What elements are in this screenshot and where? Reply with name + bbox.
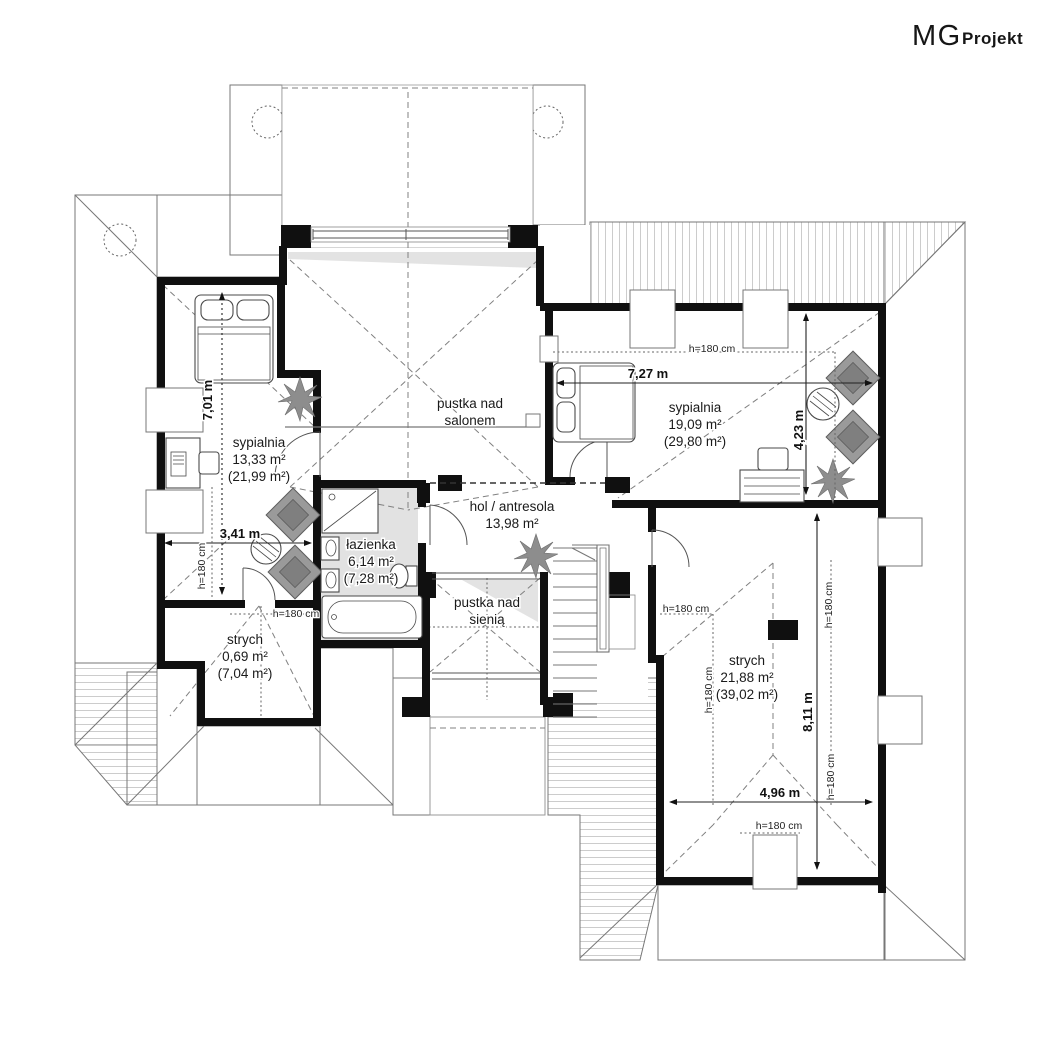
- svg-text:(21,99 m²): (21,99 m²): [228, 469, 290, 484]
- dimension-label: 7,27 m: [628, 366, 668, 381]
- front-gable-face: [430, 717, 545, 815]
- sink-icon: [321, 569, 339, 592]
- dimension-label: 4,23 m: [791, 410, 806, 450]
- chair-icon: [199, 452, 219, 474]
- roof-gable-strip-right: [533, 85, 585, 225]
- logo-projekt-text: Projekt: [962, 29, 1023, 48]
- roof-top-left: [157, 195, 285, 277]
- floor-plan-drawing: 7,01 m 3,41 m 7,27 m 4,23 m 8,11 m 4,96 …: [0, 0, 1050, 1050]
- roof-window-icon: [531, 106, 563, 138]
- roof-window-icon: [252, 106, 284, 138]
- svg-text:hol / antresola: hol / antresola: [470, 499, 555, 514]
- brand-logo: MG Projekt: [912, 20, 1023, 52]
- knee-wall-label: h=180 cm: [196, 543, 208, 590]
- svg-text:strych: strych: [729, 653, 765, 668]
- svg-text:sypialnia: sypialnia: [233, 435, 286, 450]
- bed-icon: [553, 363, 635, 442]
- dormer-window: [146, 388, 203, 432]
- sink-icon: [321, 537, 339, 560]
- roof-front-left-c: [197, 726, 320, 805]
- svg-text:(7,28 m²): (7,28 m²): [344, 571, 399, 586]
- svg-text:(7,04 m²): (7,04 m²): [218, 666, 273, 681]
- floor-plan-page: 7,01 m 3,41 m 7,27 m 4,23 m 8,11 m 4,96 …: [0, 0, 1050, 1050]
- shower-icon: [322, 489, 378, 533]
- svg-text:łazienka: łazienka: [346, 537, 396, 552]
- knee-wall-label: h=180 cm: [825, 754, 837, 801]
- svg-text:19,09 m²: 19,09 m²: [668, 417, 722, 432]
- dimension-label: 4,96 m: [760, 785, 800, 800]
- roof-right-band: [884, 222, 965, 960]
- dormer-window: [753, 835, 797, 889]
- knee-wall-label: h=180 cm: [689, 343, 736, 355]
- chair-icon: [758, 448, 788, 470]
- stair-railing: [597, 545, 609, 652]
- glazing-post: [281, 225, 311, 248]
- dormer-window: [146, 490, 203, 533]
- logo-mg-text: MG: [912, 20, 962, 52]
- svg-text:sypialnia: sypialnia: [669, 400, 722, 415]
- roof-front-left-b: [157, 667, 197, 805]
- svg-text:(39,02 m²): (39,02 m²): [716, 687, 778, 702]
- roof-mid-front: [548, 678, 658, 960]
- svg-text:strych: strych: [227, 632, 263, 647]
- salon-glazing: [311, 227, 510, 242]
- knee-wall-label: h=180 cm: [273, 608, 320, 620]
- roof-front-left-d: [320, 648, 393, 805]
- window: [540, 336, 558, 362]
- svg-text:(29,80 m²): (29,80 m²): [664, 434, 726, 449]
- pier: [402, 697, 430, 717]
- bed-icon: [195, 295, 273, 383]
- svg-text:13,98 m²: 13,98 m²: [485, 516, 539, 531]
- svg-text:pustka nad: pustka nad: [454, 595, 520, 610]
- knee-wall-label: h=180 cm: [703, 667, 715, 714]
- knee-wall-label: h=180 cm: [663, 603, 710, 615]
- dimension-label: 3,41 m: [220, 526, 260, 541]
- svg-text:13,33 m²: 13,33 m²: [232, 452, 286, 467]
- roof-left-lower: [75, 663, 157, 805]
- dimension-label: 8,11 m: [800, 692, 815, 732]
- knee-wall-label: h=180 cm: [756, 820, 803, 832]
- svg-text:21,88 m²: 21,88 m²: [720, 670, 774, 685]
- roof-bottom-right: [658, 885, 885, 960]
- roof-gable-strip-left: [230, 85, 282, 255]
- window: [878, 696, 922, 744]
- room-label-sypialnia-1: sypialnia 13,33 m² (21,99 m²): [228, 435, 290, 484]
- svg-text:pustka nad: pustka nad: [437, 396, 503, 411]
- dormer-window: [743, 290, 788, 348]
- svg-text:salonem: salonem: [444, 413, 495, 428]
- room-label-lazienka: łazienka 6,14 m² (7,28 m²): [344, 537, 399, 586]
- glazing-post: [508, 225, 538, 248]
- dimension-label: 7,01 m: [200, 380, 215, 420]
- bathtub-icon: [322, 596, 422, 638]
- dormer-window: [630, 290, 675, 348]
- room-label-sypialnia-2: sypialnia 19,09 m² (29,80 m²): [664, 400, 726, 449]
- svg-text:6,14 m²: 6,14 m²: [348, 554, 394, 569]
- knee-wall-label: h=180 cm: [823, 582, 835, 629]
- chimney: [768, 620, 798, 640]
- svg-text:0,69 m²: 0,69 m²: [222, 649, 268, 664]
- window: [878, 518, 922, 566]
- svg-text:sienią: sienią: [469, 612, 505, 627]
